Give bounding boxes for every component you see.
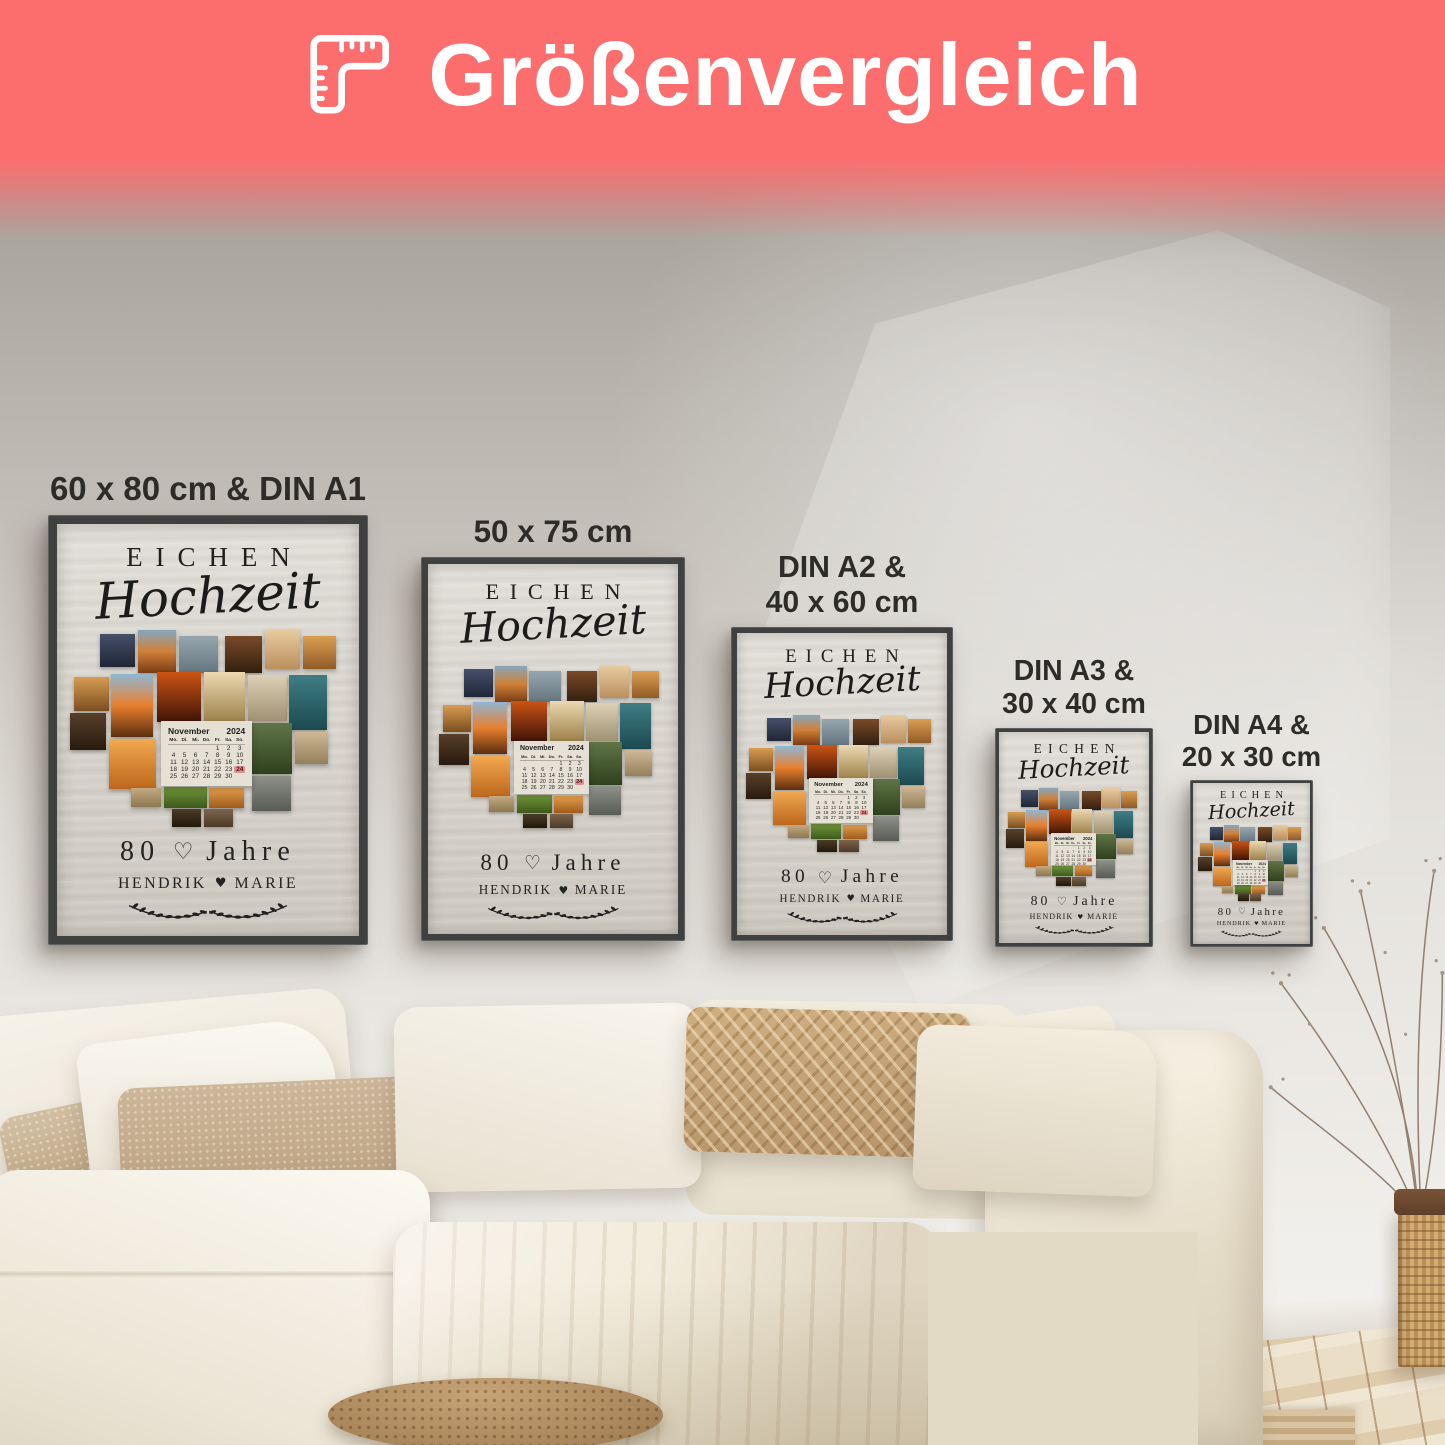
header-content: Größenvergleich [302, 28, 1142, 122]
woven-pouf [328, 1378, 663, 1445]
throw-pillow-white-large [393, 1002, 701, 1192]
ruler-icon [302, 28, 396, 122]
throw-pillow-cream-right [912, 1024, 1158, 1197]
page-title: Größenvergleich [428, 31, 1142, 119]
scene: Größenvergleich 60 x 80 cm & DIN A1 EICH… [0, 0, 1445, 1445]
sofa-seat-cushion-right [928, 1232, 1198, 1445]
header-banner: Größenvergleich [0, 0, 1445, 238]
